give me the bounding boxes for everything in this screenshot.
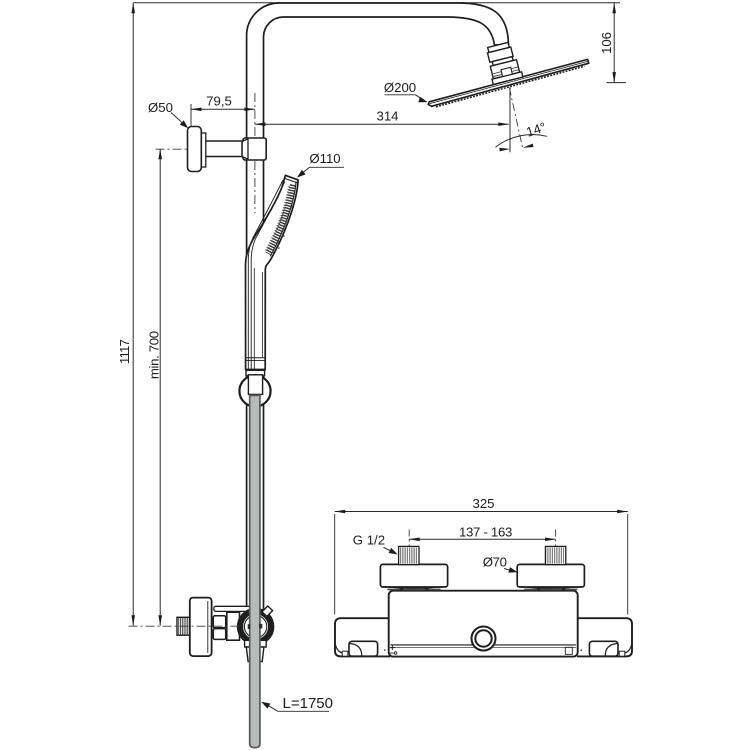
svg-text:314: 314 xyxy=(376,108,398,123)
svg-text:79,5: 79,5 xyxy=(206,94,232,109)
svg-text:137 - 163: 137 - 163 xyxy=(459,524,512,539)
svg-text:1117: 1117 xyxy=(117,339,132,364)
svg-text:L=1750: L=1750 xyxy=(283,695,333,712)
svg-text:Ø110: Ø110 xyxy=(309,151,340,166)
svg-text:106: 106 xyxy=(599,32,614,54)
svg-text:G 1/2: G 1/2 xyxy=(353,532,385,547)
svg-text:Ø70: Ø70 xyxy=(483,555,507,570)
svg-text:Ø200: Ø200 xyxy=(384,80,416,95)
svg-text:Ø50: Ø50 xyxy=(148,100,173,115)
svg-text:min. 700: min. 700 xyxy=(146,331,161,379)
svg-text:325: 325 xyxy=(472,496,494,511)
